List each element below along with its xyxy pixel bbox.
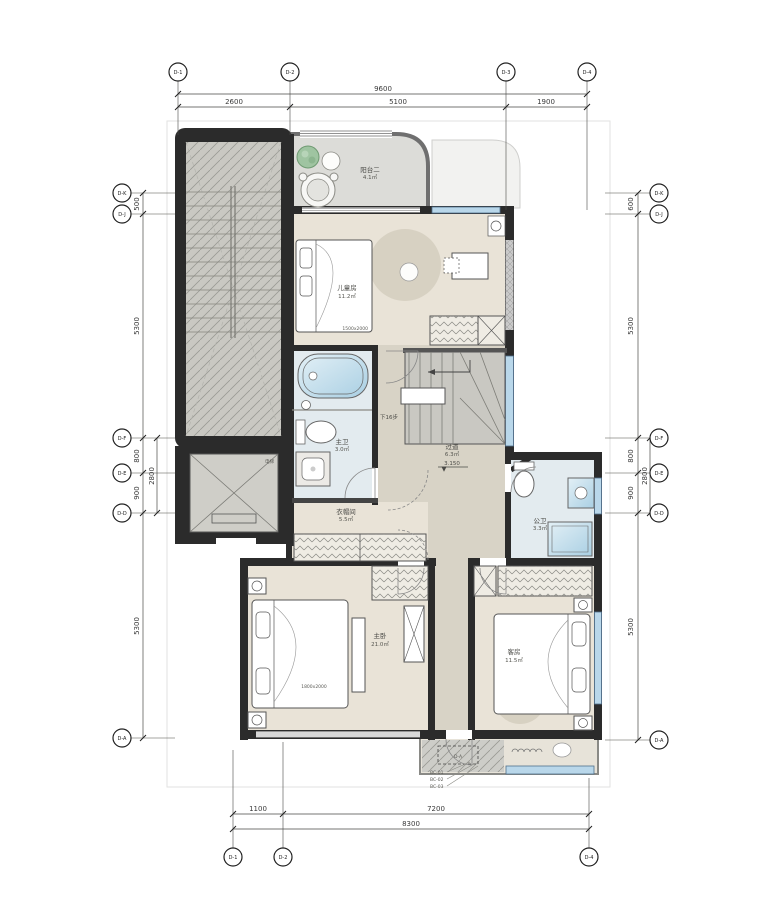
dim-bottom-overall: 8300 <box>402 820 420 828</box>
guest-room-label: 客房 <box>508 647 521 656</box>
bc-note-3: BC-03 <box>430 784 444 790</box>
children-room-area: 11.2㎡ <box>338 292 356 300</box>
stair-note: 下16步 <box>380 414 398 421</box>
guest-room-area: 11.5㎡ <box>505 656 523 664</box>
elevator-buffer <box>212 514 256 523</box>
balcony-furniture <box>297 146 340 207</box>
cloakroom-furniture <box>294 534 426 561</box>
grid-right-5: D-D <box>654 511 664 517</box>
grid-left-4: D-E <box>118 471 127 477</box>
dim-left-inner: 2800 <box>148 467 156 485</box>
toilet <box>306 421 336 443</box>
dim-bottom-2: 7200 <box>427 805 445 813</box>
dim-left-5: 5300 <box>133 617 141 635</box>
bc-note-1: BC-01 <box>430 770 444 776</box>
stair-shaft <box>175 128 292 448</box>
elevator: 电梯 <box>175 446 292 546</box>
adjacent-unit-outline <box>432 140 520 208</box>
corridor-label: 过道 <box>446 442 460 451</box>
master-bath-label: 主卫 <box>336 437 350 446</box>
dim-right-1: 600 <box>627 197 635 210</box>
bed-bench <box>352 618 365 692</box>
dim-right-2: 5300 <box>627 317 635 335</box>
dim-top-3: 1900 <box>537 98 555 106</box>
floorplan-sheet: 电梯 <box>0 0 784 900</box>
grid-right-6: D-A <box>655 738 665 744</box>
balcony2-label: 阳台二 <box>360 165 380 174</box>
dim-left-1: 500 <box>133 197 141 210</box>
dim-right-5: 5300 <box>627 618 635 636</box>
equipment-platform-hatch <box>422 740 504 772</box>
master-bath-area: 3.0㎡ <box>335 445 350 453</box>
corridor-area: 6.3㎡ <box>445 450 460 458</box>
dim-right-3: 800 <box>627 449 635 462</box>
public-bath-area: 3.3㎡ <box>533 524 548 532</box>
grid-left-3: D-F <box>118 436 127 442</box>
bc-note-2: BC-02 <box>430 777 444 783</box>
grid-right-2: D-J <box>655 212 662 218</box>
grid-top-1: D-1 <box>174 70 183 76</box>
grid-right-1: D-K <box>655 191 665 197</box>
grid-bottom-3: D-4 <box>585 855 594 861</box>
grid-left-5: D-D <box>117 511 127 517</box>
balcony2-area: 4.1㎡ <box>363 173 378 181</box>
cloakroom-label: 衣帽间 <box>336 507 356 516</box>
dim-bottom-1: 1100 <box>249 805 267 813</box>
master-bed-tag: 1800x2000 <box>301 684 327 690</box>
elevator-label: 电梯 <box>265 458 274 465</box>
dim-top-2: 5100 <box>389 98 407 106</box>
dim-left-4: 900 <box>133 486 141 499</box>
master-bedroom-label: 主卧 <box>374 631 388 640</box>
grid-bottom-2: D-2 <box>279 855 288 861</box>
corridor-level: 3.150 <box>444 461 460 467</box>
public-bath-label: 公卫 <box>534 517 548 525</box>
dim-right-4: 900 <box>627 486 635 499</box>
shower <box>548 522 592 556</box>
dim-left-2: 5300 <box>133 317 141 335</box>
dim-right-inner: 2800 <box>641 467 649 485</box>
cloakroom-area: 5.5㎡ <box>339 515 354 523</box>
plant-icon <box>297 146 319 168</box>
grid-top-2: D-2 <box>286 70 295 76</box>
grid-left-2: D-J <box>118 212 125 218</box>
grid-right-3: D-F <box>655 436 664 442</box>
children-bed-tag: 1500x2000 <box>342 326 368 332</box>
faucet <box>302 401 311 410</box>
grid-left-6: D-A <box>118 736 128 742</box>
elevator-door-opening <box>216 538 256 546</box>
grid-top-4: D-4 <box>583 70 592 76</box>
dim-top-1: 2600 <box>225 98 243 106</box>
toilet <box>514 471 534 497</box>
floorplan-drawing: 电梯 <box>0 0 784 900</box>
master-bedroom-area: 21.0㎡ <box>371 640 389 648</box>
grid-right-4: D-E <box>655 471 664 477</box>
dim-top-overall: 9600 <box>374 85 392 93</box>
grid-bottom-1: D-1 <box>229 855 238 861</box>
chair <box>444 258 459 273</box>
dim-left-3: 800 <box>133 449 141 462</box>
grid-top-3: D-3 <box>502 70 511 76</box>
grid-left-1: D-K <box>118 191 128 197</box>
children-room-label: 儿童房 <box>337 283 357 292</box>
